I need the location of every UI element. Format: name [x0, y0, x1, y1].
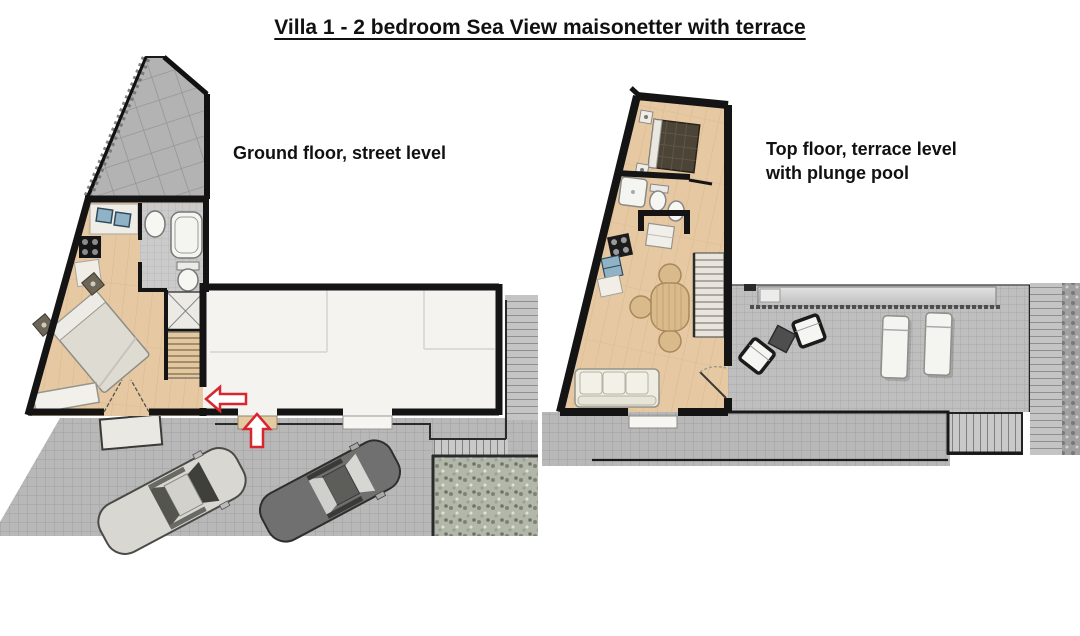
storage-room	[203, 283, 499, 416]
terrace-side-steps	[1030, 283, 1062, 455]
shower	[167, 292, 204, 330]
lower-street-strip	[542, 412, 950, 466]
roof-terrace	[87, 57, 207, 199]
kitchen-sink	[96, 208, 113, 223]
garden-bed	[432, 455, 538, 536]
kitchen-counter	[597, 275, 622, 297]
pool-steps	[760, 289, 780, 302]
top-staircase	[694, 253, 724, 337]
door-step	[343, 416, 392, 429]
sun-lounger	[881, 316, 912, 382]
plunge-pool	[744, 284, 1002, 307]
top-bed	[648, 119, 700, 172]
cabinet	[646, 223, 675, 248]
rocky-strip	[1062, 283, 1080, 455]
door-step	[629, 416, 677, 428]
dining-chair	[659, 330, 681, 352]
entrance-porch	[100, 414, 162, 449]
kitchen-sink	[601, 255, 623, 278]
sun-lounger	[924, 313, 955, 379]
bathtub	[171, 212, 202, 258]
floorplan-page: Villa 1 - 2 bedroom Sea View maisonetter…	[0, 0, 1080, 636]
staircase	[167, 332, 204, 378]
terrace-stairs-down	[948, 413, 1022, 454]
dining-chair	[630, 296, 652, 318]
stove	[79, 236, 101, 258]
sofa	[575, 369, 659, 407]
toilet	[178, 269, 198, 291]
ground-floor-plan	[0, 0, 545, 636]
stove	[607, 233, 633, 259]
steps-band	[434, 440, 508, 457]
side-steps	[505, 295, 538, 420]
top-floor-plan	[540, 0, 1080, 636]
nightstand	[639, 110, 653, 124]
bathroom	[140, 203, 206, 292]
bathroom-sink	[145, 211, 165, 237]
